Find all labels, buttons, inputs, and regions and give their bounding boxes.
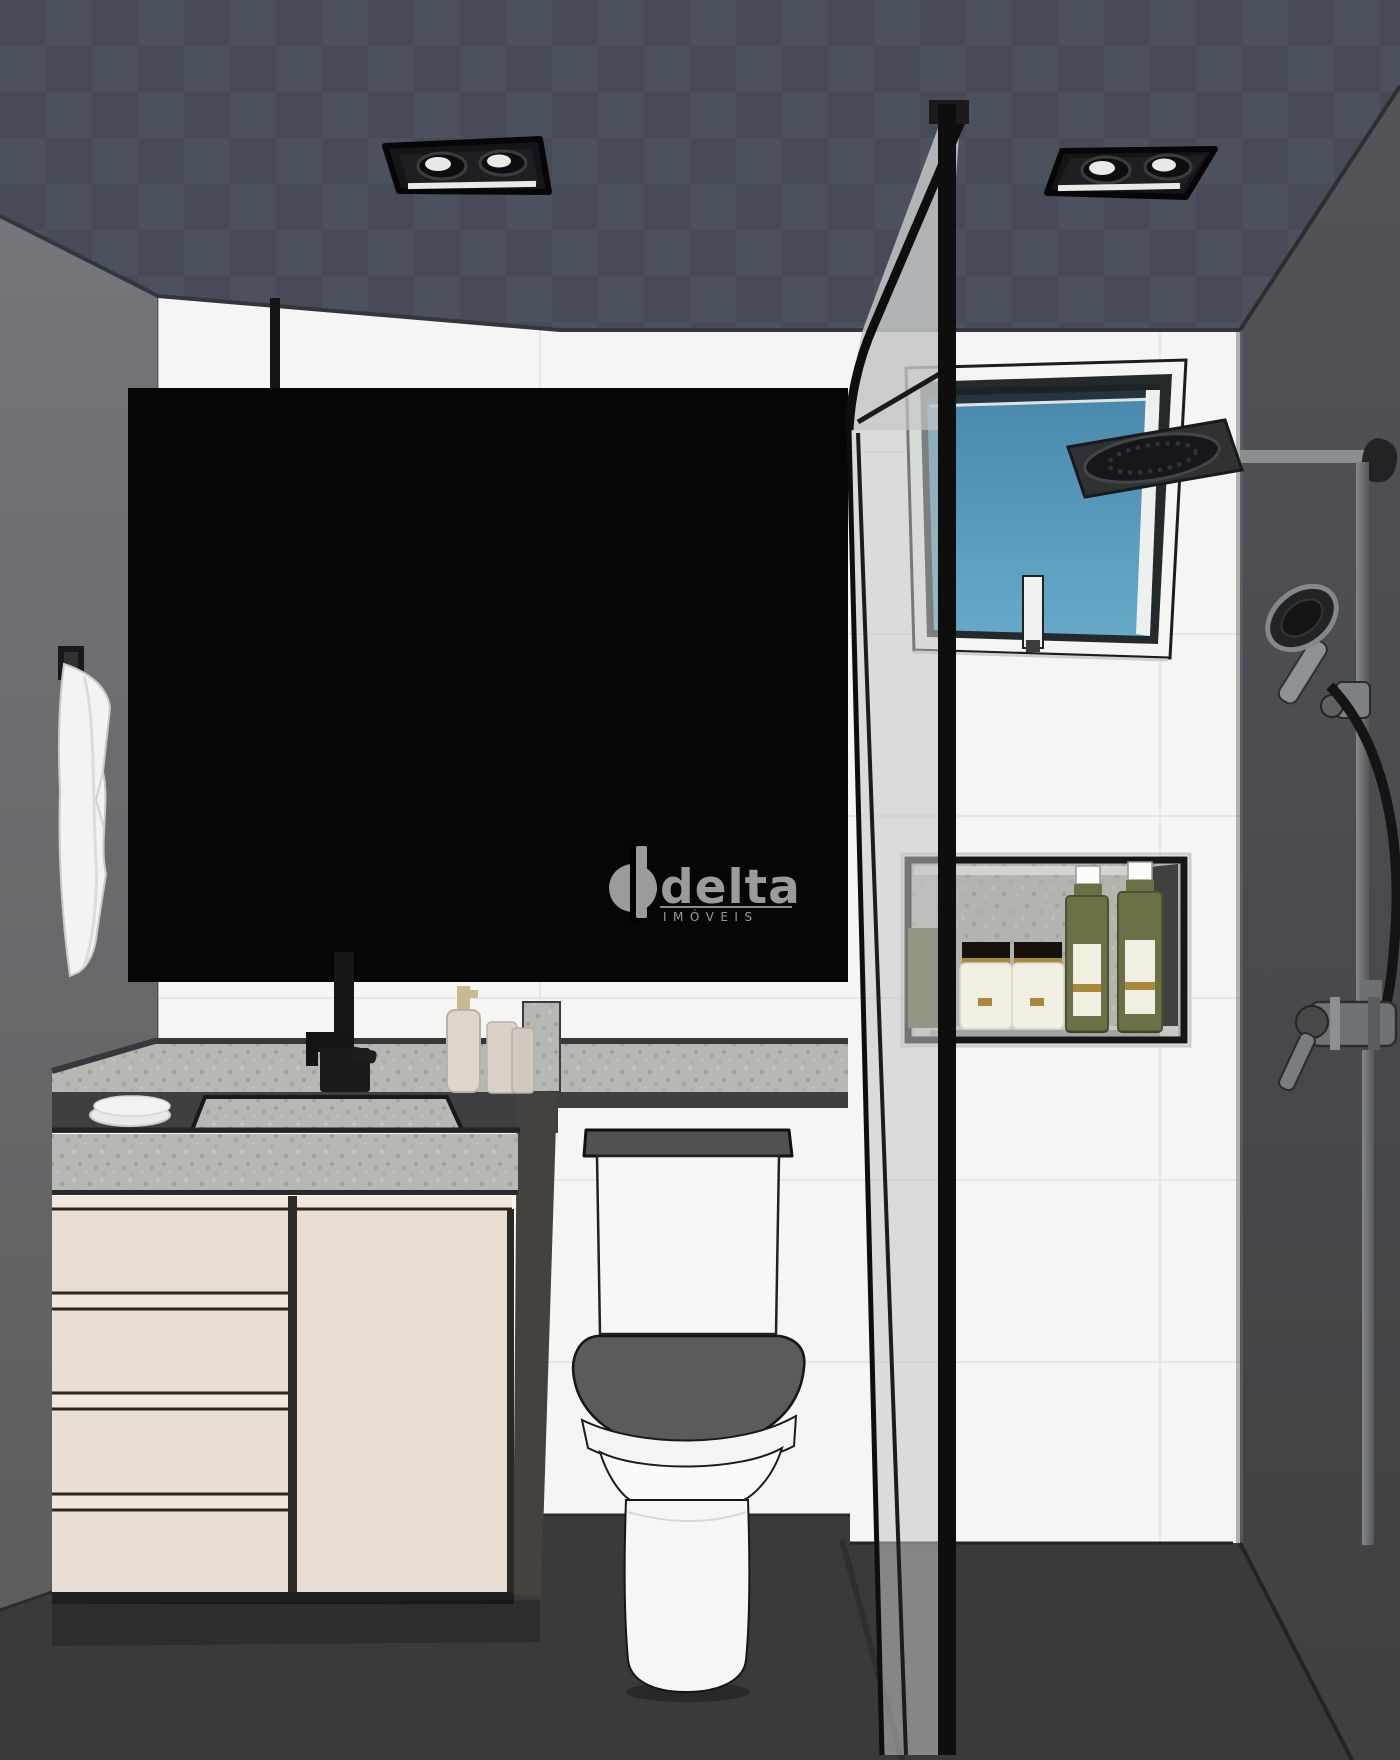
- soap-pump: [457, 986, 470, 1012]
- ceiling-light-right: [1047, 149, 1215, 197]
- ceiling-light-left: [385, 139, 549, 192]
- wall-corner-highlight: [1236, 330, 1243, 1543]
- counter-apron: [52, 1134, 518, 1192]
- tank-lid: [584, 1130, 792, 1156]
- soap-dispenser: [447, 1010, 480, 1092]
- soap-dish: [90, 1096, 170, 1126]
- watermark-subtitle-text: IMÓVEIS: [663, 909, 759, 924]
- toilet-tank: [597, 1156, 779, 1334]
- sink-basin: [192, 1097, 462, 1130]
- window-handle: [1023, 576, 1043, 648]
- ceiling: [0, 0, 1400, 330]
- glass-post: [938, 104, 956, 1755]
- cabinet-divider: [288, 1196, 297, 1592]
- toilet-pedestal: [625, 1500, 750, 1692]
- mirror: delta IMÓVEIS: [128, 298, 848, 982]
- canister: [512, 1028, 534, 1093]
- mirror-hanging-rod: [270, 298, 280, 392]
- bathroom-render: delta IMÓVEIS: [0, 0, 1400, 1760]
- drawer-handle-rail: [52, 1295, 288, 1308]
- drawer-handle-rail: [52, 1395, 288, 1408]
- drawer-handle-rail: [52, 1496, 288, 1509]
- cabinet-floor-shadow: [52, 1600, 540, 1646]
- bathroom-scene: delta IMÓVEIS: [0, 0, 1400, 1760]
- riser-pipe: [1362, 1050, 1374, 1545]
- door-gap: [507, 1209, 514, 1592]
- right-wall: [1236, 86, 1400, 1760]
- cabinet: [52, 1196, 540, 1646]
